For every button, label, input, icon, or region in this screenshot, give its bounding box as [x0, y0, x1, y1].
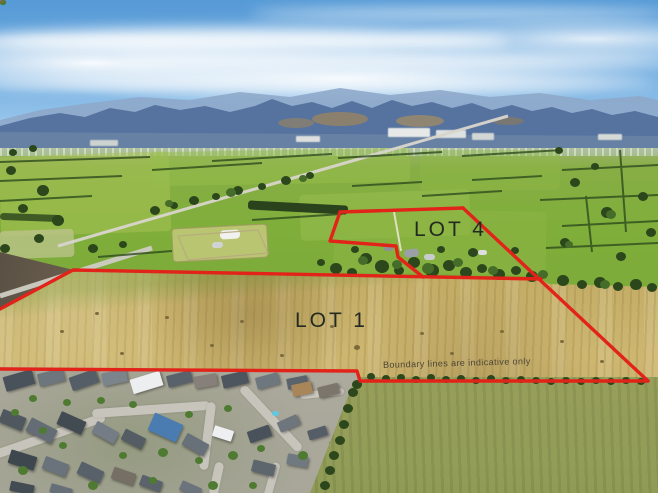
lot4-label: LOT 4 [414, 218, 487, 242]
east-diagonal-boundary [463, 208, 648, 381]
lot4-top-boundary [340, 208, 463, 212]
lot1-bottom-boundary [0, 369, 648, 381]
aerial-photo: LOT 4 LOT 1 Boundary lines are indicativ… [0, 0, 658, 493]
boundary-lines-overlay [0, 0, 658, 493]
lot1-label: LOT 1 [295, 309, 368, 333]
lot4-west-boundary [330, 212, 423, 277]
lot1-top-boundary [0, 270, 541, 309]
